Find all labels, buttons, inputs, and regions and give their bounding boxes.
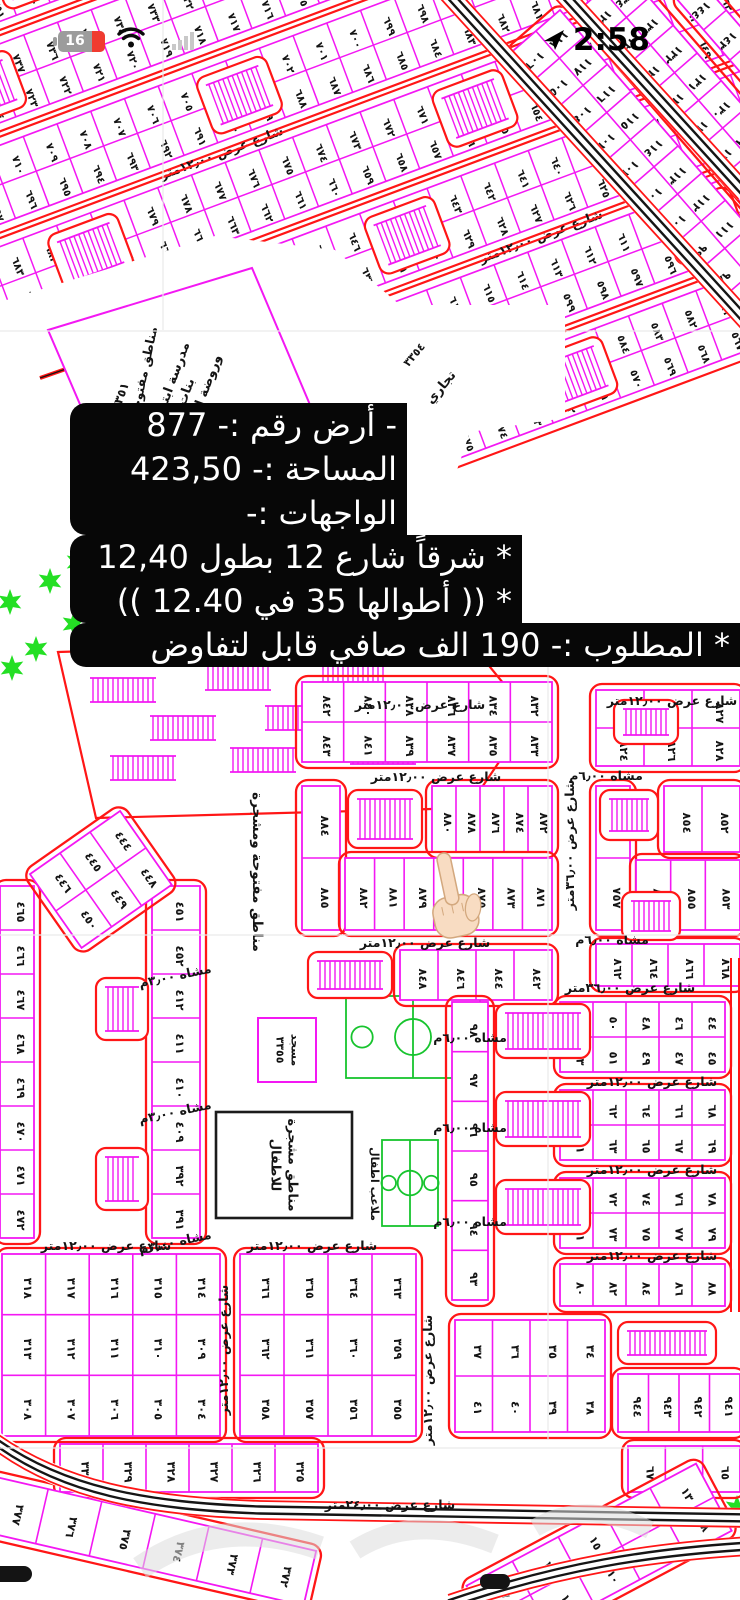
watermark-shape <box>0 1566 32 1582</box>
plot-number: ٨٠ <box>574 1282 588 1296</box>
plot-number: ٨٧٦ <box>489 812 503 833</box>
plot-number: ٨٨ <box>706 1282 720 1296</box>
plot-number: ٨٤٣ <box>320 735 334 756</box>
plot-number: ٣٥٥ <box>391 1399 405 1420</box>
plot-number: ٨٢٨ <box>713 740 727 761</box>
plot-number: ٣٥٩ <box>391 1338 405 1359</box>
street-label: شارع عرض ١٢٫٠٠متر <box>586 1162 717 1177</box>
plot-number: ٤٦٦ <box>14 945 28 966</box>
plot-number: ٨٨٥ <box>318 887 332 908</box>
street-label: شارع عرض ١٢٫٠٠متر <box>586 1248 717 1263</box>
plot-number: ٨٥٣ <box>720 888 734 909</box>
plot-number: ٨٧٣ <box>505 887 519 908</box>
plot-number: ٣٥٨ <box>259 1399 273 1420</box>
plot-number: ٨٦ <box>673 1282 687 1296</box>
svg-text:مناطق مفتوحة ومشجرة: مناطق مفتوحة ومشجرة <box>249 792 265 952</box>
plot-number: ٣٢٨ <box>165 1461 179 1482</box>
listing-line-dimensions: * (( أطوالها 35 في 12.40 )) <box>70 579 522 623</box>
parking-hatch-box <box>600 790 658 840</box>
plot-block: ٨٥٤٨٥٢ <box>658 780 740 858</box>
plot-number: ٩٣ <box>467 1272 481 1286</box>
plot-number: ٨٥٤ <box>680 812 694 833</box>
listing-line-area: المساحة :- 423,50 <box>70 447 407 491</box>
plot-number: ٧٥ <box>640 1227 654 1241</box>
plot-number: ٣٥٧ <box>303 1399 317 1420</box>
plot-number: ٣٦٤ <box>347 1278 361 1299</box>
plot-number: ٣٤ <box>583 1345 597 1359</box>
plot-number: ٣١٣ <box>21 1338 35 1359</box>
plot-number: ٣١٦ <box>108 1278 122 1299</box>
plot-number: ٣٠٥ <box>152 1399 166 1420</box>
plot-number: ٨٤٢ <box>320 695 334 716</box>
plot-number: ٥١ <box>607 1051 621 1065</box>
plot-number: ٨٤٨ <box>416 968 430 989</box>
plot-number: ٨٣٢ <box>528 695 542 716</box>
plot-number: ٤٧٠ <box>14 1121 28 1142</box>
plot-number: ٨٤٤ <box>492 968 506 989</box>
plot-number: ٣١٢ <box>64 1338 78 1359</box>
plot-number: ٨٤٦ <box>454 968 468 989</box>
plot-number: ٤٦٥ <box>14 901 28 922</box>
svg-text:مسجد: مسجد <box>289 1034 302 1066</box>
plot-number: ٤٦٧ <box>14 989 28 1010</box>
plot-number: ٨٣٤ <box>487 695 501 716</box>
plot-number: ٨٥٢ <box>718 812 732 833</box>
listing-overlay: - أرض رقم :- 877 المساحة :- 423,50 الواج… <box>70 403 740 667</box>
plot-number: ٨٥٥ <box>685 888 699 909</box>
plot-number: ٨٤ <box>640 1282 654 1296</box>
listing-line-facades: الواجهات :- <box>70 491 407 535</box>
street-label: شارع عرض ١٢٫٠٠متر <box>586 1074 717 1089</box>
plot-number: ٨٤١ <box>362 735 376 756</box>
plot-number: ٤٦٨ <box>14 1033 28 1054</box>
plot-number: ٦٣ <box>607 1139 621 1153</box>
listing-line-price: * المطلوب :- 190 الف صافي قابل لتفاوض <box>70 623 740 667</box>
plot-number: ٣٦٦ <box>259 1278 273 1299</box>
plot-block: ٣٧٣٦٣٥٣٤٤١٤٠٣٩٣٨ <box>449 1314 611 1438</box>
plot-number: ٧٢ <box>607 1192 621 1206</box>
plot-number: ٨٨٤ <box>318 815 332 836</box>
plot-number: ٣٦٠ <box>347 1338 361 1359</box>
plot-number: ٨٣٣ <box>528 735 542 756</box>
plot-number: ٨٣٧ <box>445 735 459 756</box>
street-label: مشاه ٦٫٠٠م <box>433 1120 507 1136</box>
plot-number: ٩٤٣ <box>661 1396 675 1417</box>
plot-number: ٨٨١ <box>386 887 400 908</box>
plot-number: ٧٤ <box>640 1192 654 1206</box>
watermark-shape <box>480 1574 510 1589</box>
plot-number: ٣٩١ <box>173 1209 187 1230</box>
listing-line-east-street: * شرقاً شارع 12 بطول 12,40 <box>70 535 522 579</box>
plot-number: ٤٥ <box>706 1051 720 1065</box>
plot-number: ٦٢ <box>607 1104 621 1118</box>
plot-number: ٦٦ <box>673 1104 687 1118</box>
plot-number: ٤١٠ <box>173 1077 187 1098</box>
street-label: شارع عرض ٢٤٫٠٠متر <box>324 1497 455 1512</box>
plot-number: ٣٠٤ <box>195 1399 209 1420</box>
plot-number: ٧٩ <box>706 1227 720 1241</box>
plot-number: ٤٧٢ <box>14 1209 28 1230</box>
street-label: شارع عرض ١٢٫٠٠متر <box>420 1315 435 1446</box>
plot-number: ٣٠٦ <box>108 1399 122 1420</box>
plot-number: ٣٦١ <box>303 1338 317 1359</box>
plot-number: ٦٨ <box>706 1104 720 1118</box>
plot-number: ٧٦ <box>673 1192 687 1206</box>
plot-number: ٨٧١ <box>534 887 548 908</box>
plot-number: ٨٧٩ <box>416 887 430 908</box>
street-label: شارع عرض ١٢٫٠٠متر <box>606 693 737 708</box>
plot-number: ٨٧٢ <box>537 812 551 833</box>
phone-screenshot: ٧٦٩٧٥٥٧٦٨٧٥٤٧٦٧٧٥٣٧٦٦٧٥٢٧٦٥٧٥١٧٦٤٧٥٠٧٦٣٧… <box>0 0 740 1600</box>
street-label: مشاه ٦٫٠٠م <box>433 1214 507 1230</box>
plot-number: ٧٣ <box>607 1227 621 1241</box>
plot-block: ٨٨٠٨٧٨٨٧٦٨٧٤٨٧٢ <box>426 780 558 858</box>
street-label: شارع عرض ١٢٫٠٠متر <box>354 697 485 712</box>
plot-number: ٣١٤ <box>195 1278 209 1299</box>
plot-number: ٣١٠ <box>152 1338 166 1359</box>
plot-number: ٤٦٩ <box>14 1077 28 1098</box>
plot-number: ٦٤ <box>640 1104 654 1118</box>
plot-number: ٣٢٦ <box>251 1461 265 1482</box>
plot-number: ٨٦٢ <box>611 958 625 979</box>
plot-number: ٨٤٢ <box>530 968 544 989</box>
plot-number: ٣٠٩ <box>195 1338 209 1359</box>
plot-number: ٣٥٦ <box>347 1399 361 1420</box>
street-label: شارع عرض ١٢٫٠٠متر <box>216 1285 231 1416</box>
plot-number: ٩٧ <box>467 1073 481 1087</box>
svg-text:مناطق مشجرة: مناطق مشجرة <box>285 1118 300 1211</box>
plot-number: ٣١٥ <box>152 1278 166 1299</box>
street-label: شارع عرض ١٢٫٠٠متر <box>370 769 501 784</box>
listing-line-plot-number: - أرض رقم :- 877 <box>70 403 407 447</box>
plot-number: ٤٧١ <box>14 1165 28 1186</box>
svg-text:٣٣٥٥: ٣٣٥٥ <box>274 1037 287 1064</box>
plot-number: ٨٧٨ <box>465 812 479 833</box>
kids-trees-block <box>216 1112 352 1218</box>
plot-number: ٤١١ <box>173 1033 187 1054</box>
plot-number: ٦٥ <box>640 1139 654 1153</box>
plot-number: ٩٤١ <box>722 1396 736 1417</box>
plot-number: ٩٤٢ <box>691 1396 705 1417</box>
plot-number: ٨٣٥ <box>487 735 501 756</box>
plot-number: ٣١٧ <box>64 1278 78 1299</box>
street-label: مشاه ٦٫٠٠م <box>433 1030 507 1046</box>
plot-number: ٤٤ <box>706 1016 720 1030</box>
plot-block: ٩٤٤٩٤٣٩٤٢٩٤١ <box>612 1368 740 1438</box>
svg-text:للاطفال: للاطفال <box>268 1139 283 1192</box>
plot-number: ٤١ <box>471 1401 485 1415</box>
plot-number: ٦٥ <box>718 1466 732 1480</box>
plot-number: ٧٨ <box>706 1192 720 1206</box>
plot-number: ٤٩ <box>640 1051 654 1065</box>
street-label: شارع عرض ٣٦٫٠٠متر <box>564 980 695 995</box>
parking-hatch-box <box>618 1322 716 1364</box>
plot-number: ٤٦ <box>673 1016 687 1030</box>
plot-number: ٩٤٤ <box>630 1396 644 1417</box>
plot-number: ٣٠٨ <box>21 1399 35 1420</box>
plot-number: ٧٧ <box>673 1227 687 1241</box>
plot-number: ٤٥٢ <box>173 945 187 966</box>
plot-number: ٨٧٤ <box>513 812 527 833</box>
plot-block: ٨٤٢٨٤٠٨٣٨٨٣٦٨٣٤٨٣٢٨٤٣٨٤١٨٣٩٨٣٧٨٣٥٨٣٣ <box>296 676 558 768</box>
plot-number: ٣٦٣ <box>391 1278 405 1299</box>
plot-number: ٣٠٧ <box>64 1399 78 1420</box>
plot-number: ٥٠ <box>607 1016 621 1030</box>
plot-block: ٣١٨٣١٧٣١٦٣١٥٣١٤٣١٣٣١٢٣١١٣١٠٣٠٩٣٠٨٣٠٧٣٠٦٣… <box>0 1248 226 1442</box>
plot-number: ٤١٢ <box>173 989 187 1010</box>
plot-number: ٦٩ <box>706 1139 720 1153</box>
plot-number: ٣٢٩ <box>122 1461 136 1482</box>
plot-number: ٣٩٢ <box>173 1165 187 1186</box>
street-label: شارع عرض ٣٦٫٠٠متر <box>562 780 577 911</box>
plot-number: ٣٢٧ <box>208 1461 222 1482</box>
street-label: مشاه ٦٫٠٠م <box>569 768 643 784</box>
plot-number: ٨٨٢ <box>357 887 371 908</box>
street-label: شارع عرض ١٢٫٠٠متر <box>359 935 490 950</box>
plot-block: ٣٦٦٣٦٥٣٦٤٣٦٣٣٦٢٣٦١٣٦٠٣٥٩٣٥٨٣٥٧٣٥٦٣٥٥ <box>234 1248 422 1442</box>
plot-number: ٦٧ <box>673 1139 687 1153</box>
street-label: شارع عرض ١٢٫٠٠متر <box>246 1238 377 1253</box>
plot-block: ٨٠٨٢٨٤٨٦٨٨ <box>554 1258 731 1312</box>
plot-number: ٤٠٩ <box>173 1121 187 1142</box>
plot-number: ٩٥ <box>467 1173 481 1187</box>
plot-number: ٣٦ <box>508 1345 522 1359</box>
plot-number: ٣٢٥ <box>294 1461 308 1482</box>
svg-text:ملاعب اطفال: ملاعب اطفال <box>368 1147 381 1221</box>
plot-number: ٣٦٢ <box>259 1338 273 1359</box>
plot-number: ٨٢ <box>607 1282 621 1296</box>
plot-map[interactable]: ٧٦٩٧٥٥٧٦٨٧٥٤٧٦٧٧٥٣٧٦٦٧٥٢٧٦٥٧٥١٧٦٤٧٥٠٧٦٣٧… <box>0 0 740 1600</box>
plot-number: ٨٣٩ <box>403 735 417 756</box>
plot-number: ٨٨٠ <box>441 812 455 833</box>
plot-number: ٣٦٥ <box>303 1278 317 1299</box>
street-label: شارع عرض ١٢٫٠٠متر <box>40 1238 171 1253</box>
plot-number: ٨٦٤ <box>647 958 661 979</box>
plot-number: ٤٨ <box>640 1016 654 1030</box>
plot-number: ٣١٨ <box>21 1278 35 1299</box>
plot-number: ٣٨ <box>583 1401 597 1415</box>
plot-number: ٣٧ <box>471 1345 485 1359</box>
plot-number: ٤٧ <box>673 1051 687 1065</box>
plot-number: ٨٦٦ <box>683 958 697 979</box>
plot-number: ٤٥١ <box>173 901 187 922</box>
plot-number: ٣١١ <box>108 1338 122 1359</box>
plot-number: ٤٠ <box>508 1401 522 1415</box>
